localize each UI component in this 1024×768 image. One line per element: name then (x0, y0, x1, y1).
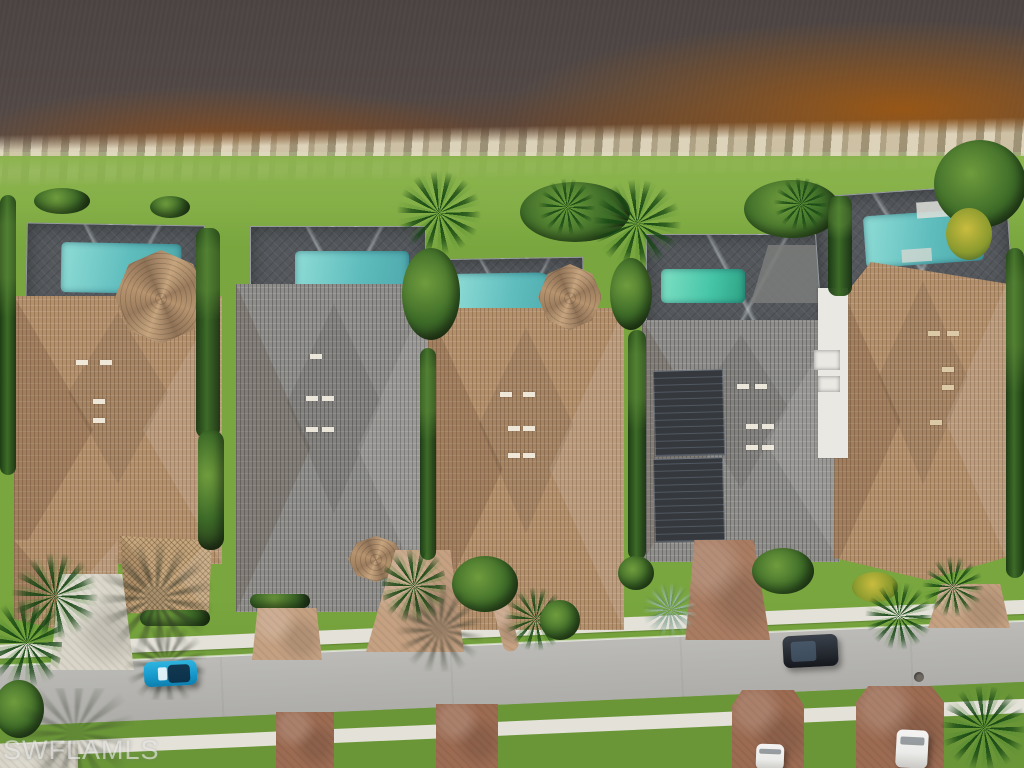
palm-tree (592, 176, 682, 271)
property-hedge (420, 348, 436, 560)
roof-vent (947, 331, 959, 336)
property-hedge (196, 228, 220, 438)
watermark-text: SWFLAMLS (3, 735, 160, 766)
property-hedge (828, 196, 852, 296)
palm-tree (396, 168, 482, 258)
dark-suv (782, 634, 839, 669)
driveway-house-2 (252, 608, 322, 660)
ac-unit (814, 350, 840, 370)
roof-facet (14, 296, 222, 564)
roof-vent (508, 426, 520, 431)
shrub (34, 188, 90, 214)
roof-vent (523, 453, 535, 458)
roof-vent (93, 418, 105, 423)
roof-vent (942, 367, 954, 372)
shrub (618, 556, 654, 590)
roof-facet (830, 262, 1016, 580)
roof-vent (737, 384, 749, 389)
roof-vent (942, 385, 954, 390)
pool-deck (901, 248, 932, 263)
roof-vent (500, 392, 512, 397)
roof-vent (523, 392, 535, 397)
property-hedge (628, 330, 646, 560)
shrub (752, 548, 814, 594)
roof-vent (306, 427, 318, 432)
house-5-side-wall (818, 288, 848, 458)
roof-vent (310, 354, 322, 359)
palm-tree (770, 178, 832, 230)
roof-vent (755, 384, 767, 389)
roof-vent (930, 420, 942, 425)
shrub (540, 600, 580, 640)
flowering-shrub (946, 208, 992, 260)
teal-car (143, 660, 197, 688)
palm-shadow (392, 588, 488, 672)
shrub (610, 258, 652, 330)
aerial-photo: SWFLAMLS (0, 0, 1024, 768)
palm-tree (536, 178, 598, 236)
driveway-lower (436, 704, 498, 768)
roof-vent (762, 424, 774, 429)
roof-vent (508, 453, 520, 458)
roof-vent (746, 445, 758, 450)
roof-vent (746, 424, 758, 429)
silver-palm (642, 580, 698, 640)
palm-tree (920, 556, 986, 618)
ac-unit (818, 376, 840, 392)
shrub-row (250, 594, 310, 608)
roof-vent (762, 445, 774, 450)
roof-vent (322, 427, 334, 432)
driveway-lower (276, 712, 334, 768)
palm-tree (936, 686, 1024, 768)
property-hedge (1006, 248, 1024, 578)
roof-vent (523, 426, 535, 431)
white-car (895, 729, 929, 768)
house-1-turret-roof (115, 250, 207, 344)
solar-panel-array (653, 369, 725, 457)
house-1-roof (14, 296, 222, 564)
tropical-plants (402, 248, 460, 340)
house-5-roof (830, 262, 1016, 580)
roof-vent (306, 396, 318, 401)
manhole-cover (914, 672, 924, 682)
roof-vent (76, 360, 88, 365)
roof-vent (100, 360, 112, 365)
solar-panel-array (653, 457, 725, 543)
roof-vent (322, 396, 334, 401)
roof-vent (928, 331, 940, 336)
roof-vent (93, 399, 105, 404)
shrub-row (198, 430, 224, 550)
white-car-partial (756, 744, 785, 768)
property-hedge (0, 195, 16, 475)
shrub (150, 196, 190, 218)
house-4-pool (661, 269, 745, 303)
